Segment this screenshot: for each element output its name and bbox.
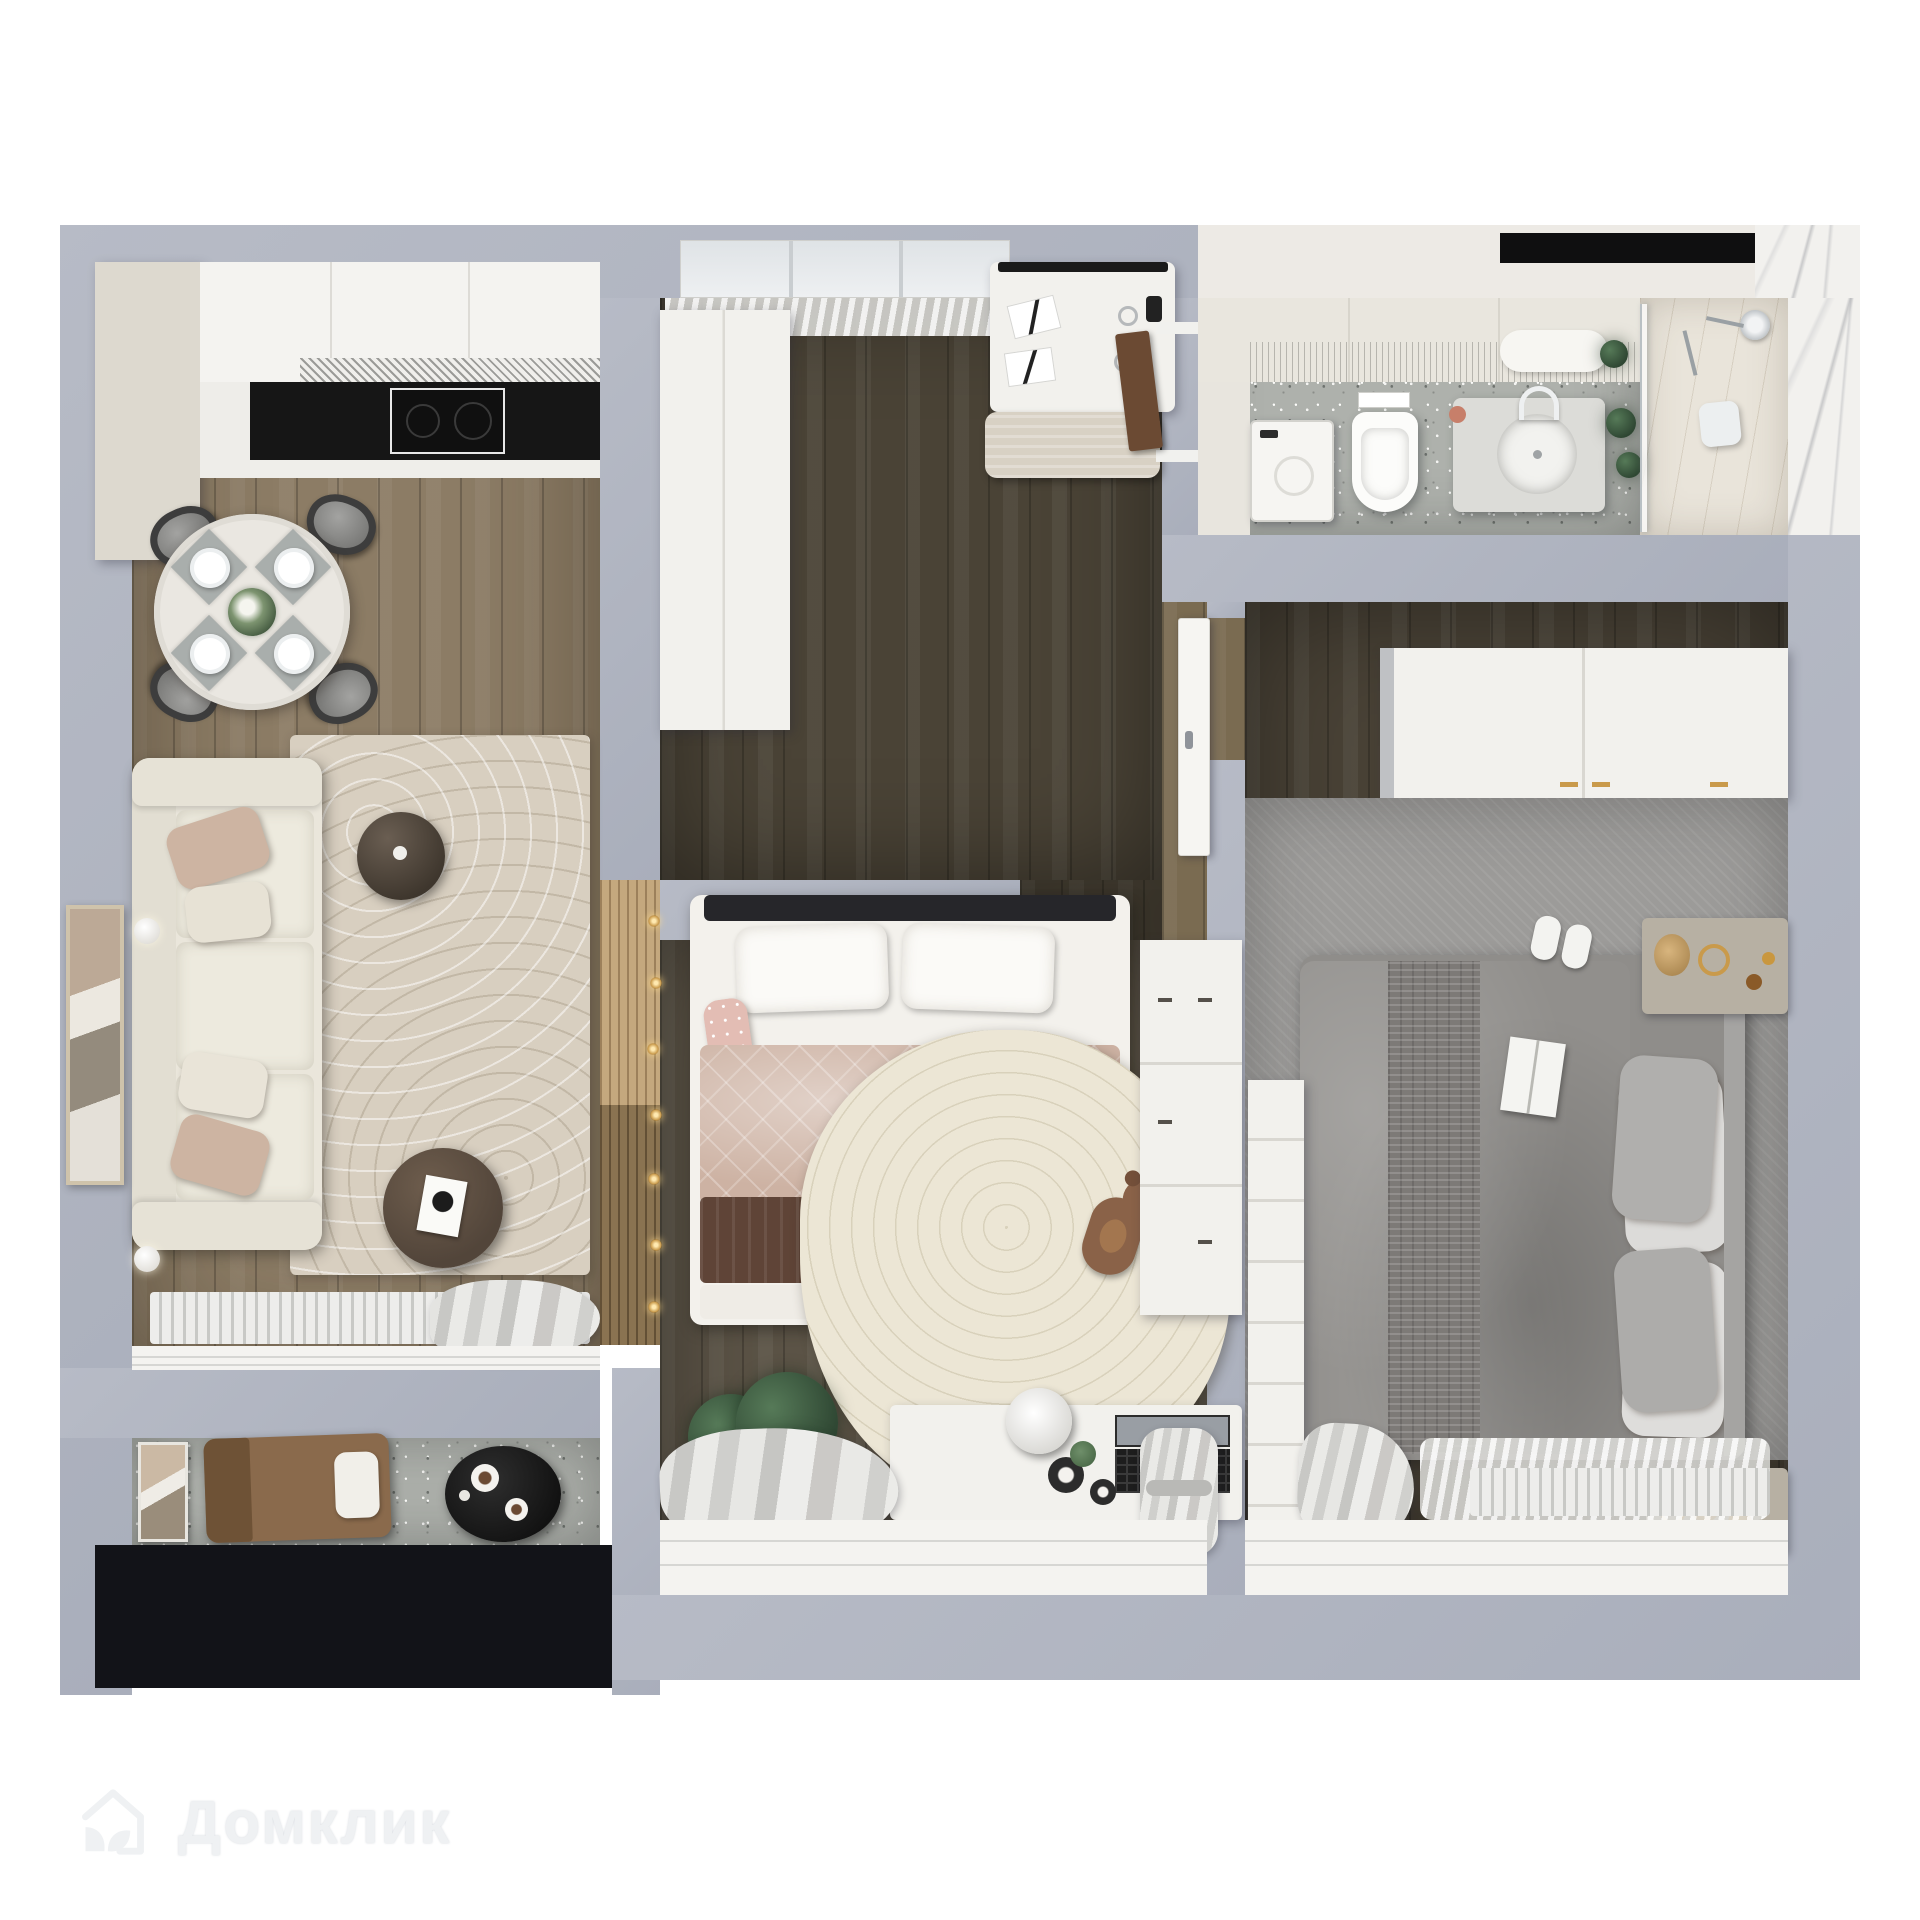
- flush-plate: [1358, 392, 1410, 408]
- fairy-light-dot: [650, 977, 662, 989]
- bed-knit-throw: [1388, 961, 1480, 1454]
- reading-glasses: [1118, 306, 1138, 326]
- soap-dispenser: [1449, 406, 1466, 423]
- decor-candle: [1746, 974, 1762, 990]
- sofa-arm: [132, 758, 322, 806]
- bed-pillow-gray: [1612, 1246, 1719, 1414]
- shower-glass-partition: [1640, 304, 1647, 532]
- kids-pillow: [735, 922, 890, 1013]
- open-book: [1500, 1036, 1566, 1117]
- wall-sconce: [134, 1246, 160, 1272]
- vanity: [1453, 398, 1605, 512]
- bedroom-radiator: [1470, 1468, 1770, 1516]
- bedroom-bed: [1300, 955, 1745, 1460]
- cooktop-burner: [454, 402, 492, 440]
- flower-centerpiece: [228, 588, 276, 636]
- bath-left-cabinet: [1198, 382, 1250, 535]
- curtain-tie: [1146, 1480, 1212, 1496]
- wall-bottom-band: [600, 1595, 1860, 1680]
- wall-living-bottom: [60, 1368, 600, 1438]
- bathroom-mirror-strip: [1500, 233, 1758, 263]
- kids-headboard: [704, 895, 1116, 921]
- plate: [190, 634, 230, 674]
- decor-gold-ring: [1698, 944, 1730, 976]
- lounge-backrest: [203, 1438, 253, 1544]
- mirror-shelf: [1500, 330, 1608, 372]
- lounge-chair: [203, 1433, 392, 1543]
- decor-dried-flowers: [1654, 934, 1690, 976]
- bedroom-tv-panel: [1248, 1080, 1304, 1520]
- wall-hung-toilet: [1352, 412, 1418, 512]
- wall-art: [66, 905, 124, 1185]
- desk-jar: [1090, 1479, 1116, 1505]
- kids-pillow: [901, 922, 1056, 1013]
- bathroom-door-jamb: [1156, 450, 1202, 462]
- wall-bath-bottom: [1162, 535, 1788, 602]
- wardrobe-handle: [1560, 782, 1578, 787]
- lounge-pillow: [334, 1451, 380, 1518]
- cooktop: [390, 388, 505, 454]
- balcony-table: [445, 1446, 561, 1542]
- sofa-arm: [132, 1202, 322, 1250]
- fairy-light-dot: [650, 1109, 662, 1121]
- kids-dresser: [1140, 940, 1242, 1315]
- kids-wardrobe: [660, 310, 790, 730]
- bathroom-door-jamb: [1156, 322, 1202, 334]
- watermark: Домклик: [70, 1772, 550, 1872]
- apartment-floorplan: Домклик: [0, 0, 1920, 1920]
- plate: [274, 634, 314, 674]
- side-table: [357, 812, 445, 900]
- wall-bedroom-left-a: [1207, 602, 1245, 618]
- desk-plantlet: [1070, 1441, 1096, 1467]
- wall-sconce: [134, 918, 160, 944]
- glazing-transom-row: [103, 1552, 604, 1584]
- bath-plant: [1606, 408, 1636, 438]
- kitchen-counter-ledge: [250, 460, 600, 478]
- bedroom-window-sill: [1245, 1520, 1788, 1595]
- open-door-leaf: [1178, 618, 1210, 856]
- washer-panel: [1260, 430, 1278, 438]
- watermark-brand: Домклик: [178, 1788, 452, 1857]
- wall-living-kids: [600, 298, 660, 880]
- desk-edge-trim: [998, 262, 1168, 272]
- kitchen-drainer-hatch: [300, 358, 600, 384]
- magazine: [416, 1175, 467, 1237]
- nightstand-top: [1642, 918, 1788, 1014]
- dresser-handle: [1158, 1120, 1172, 1124]
- paper-sheet: [1007, 295, 1062, 340]
- bedroom-wardrobe: [1380, 648, 1788, 798]
- dining-table: [154, 514, 350, 710]
- plate: [190, 548, 230, 588]
- fairy-light-dot: [648, 1301, 660, 1313]
- living-window-sill: [132, 1346, 600, 1370]
- fairy-light-dot: [647, 1043, 659, 1055]
- coffee-table: [383, 1148, 503, 1268]
- cooktop-burner: [406, 404, 440, 438]
- sofa: [132, 758, 322, 1250]
- balcony-artwork: [138, 1442, 188, 1542]
- door-handle: [1185, 731, 1193, 749]
- wardrobe-handle: [1592, 782, 1610, 787]
- washer-drum: [1274, 456, 1314, 496]
- throw-pillow-cream: [183, 880, 272, 944]
- bed-headboard: [1724, 959, 1745, 1456]
- slipper: [1559, 922, 1594, 970]
- wardrobe-handle: [1710, 782, 1728, 787]
- dresser-handle: [1158, 998, 1172, 1002]
- kids-window-sill: [660, 1520, 1207, 1595]
- shower-head: [1740, 310, 1770, 340]
- kids-window-frame: [680, 240, 1010, 298]
- dresser-handle: [1198, 998, 1212, 1002]
- fairy-lights: [646, 905, 662, 1325]
- cup: [393, 846, 407, 860]
- saucer-dot: [459, 1490, 470, 1501]
- desk-lamp: [1146, 296, 1162, 322]
- balcony-glazing: [95, 1545, 612, 1688]
- sink-drain: [1533, 450, 1542, 459]
- bed-pillow-gray: [1610, 1054, 1719, 1224]
- dresser-handle: [1198, 1240, 1212, 1244]
- faucet: [1519, 386, 1559, 420]
- glazing-main-row: [103, 1593, 604, 1680]
- decor-candle: [1762, 952, 1775, 965]
- fairy-light-dot: [648, 1173, 660, 1185]
- shower-shelf: [1698, 400, 1742, 448]
- toilet-seat: [1361, 428, 1409, 500]
- fairy-light-dot: [650, 1239, 662, 1251]
- tulip-chair: [1006, 1388, 1072, 1454]
- paper-sheet: [1004, 347, 1056, 387]
- plate: [274, 548, 314, 588]
- marble-wall-right: [1788, 298, 1860, 535]
- bath-plant: [1600, 340, 1628, 368]
- bath-plant: [1616, 452, 1642, 478]
- coffee-cup: [471, 1464, 499, 1492]
- house-leaf-logo-icon: [70, 1779, 156, 1865]
- kitchen-counter-side: [200, 382, 250, 478]
- fairy-light-dot: [648, 915, 660, 927]
- marble-wall-top: [1755, 225, 1860, 298]
- washing-machine: [1250, 420, 1334, 522]
- coffee-cup: [505, 1498, 528, 1521]
